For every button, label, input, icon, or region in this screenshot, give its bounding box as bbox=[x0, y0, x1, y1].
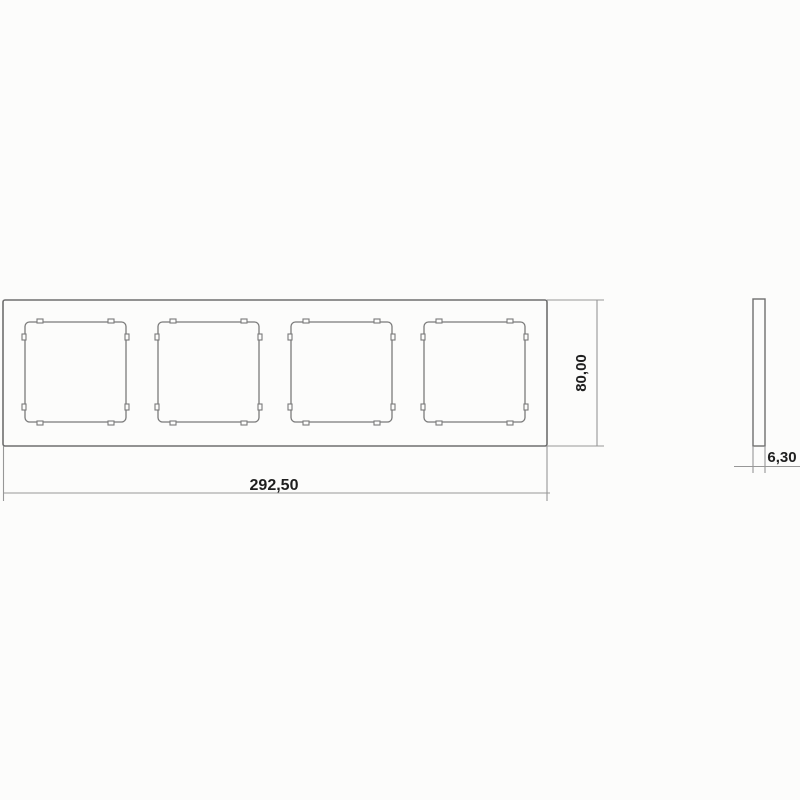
thickness-label: 6,30 bbox=[767, 449, 796, 466]
frame-opening-4 bbox=[421, 319, 528, 425]
technical-drawing: 292,50 80,00 6,30 bbox=[0, 0, 800, 800]
side-view bbox=[753, 299, 765, 446]
frame-opening-1 bbox=[22, 319, 129, 425]
side-view-outline bbox=[753, 299, 765, 446]
drawing-canvas: 292,50 80,00 6,30 bbox=[0, 0, 800, 800]
front-view bbox=[3, 300, 547, 446]
frame-opening-3 bbox=[288, 319, 395, 425]
frame-opening-2 bbox=[155, 319, 262, 425]
height-label: 80,00 bbox=[573, 354, 590, 392]
width-label: 292,50 bbox=[250, 477, 299, 494]
